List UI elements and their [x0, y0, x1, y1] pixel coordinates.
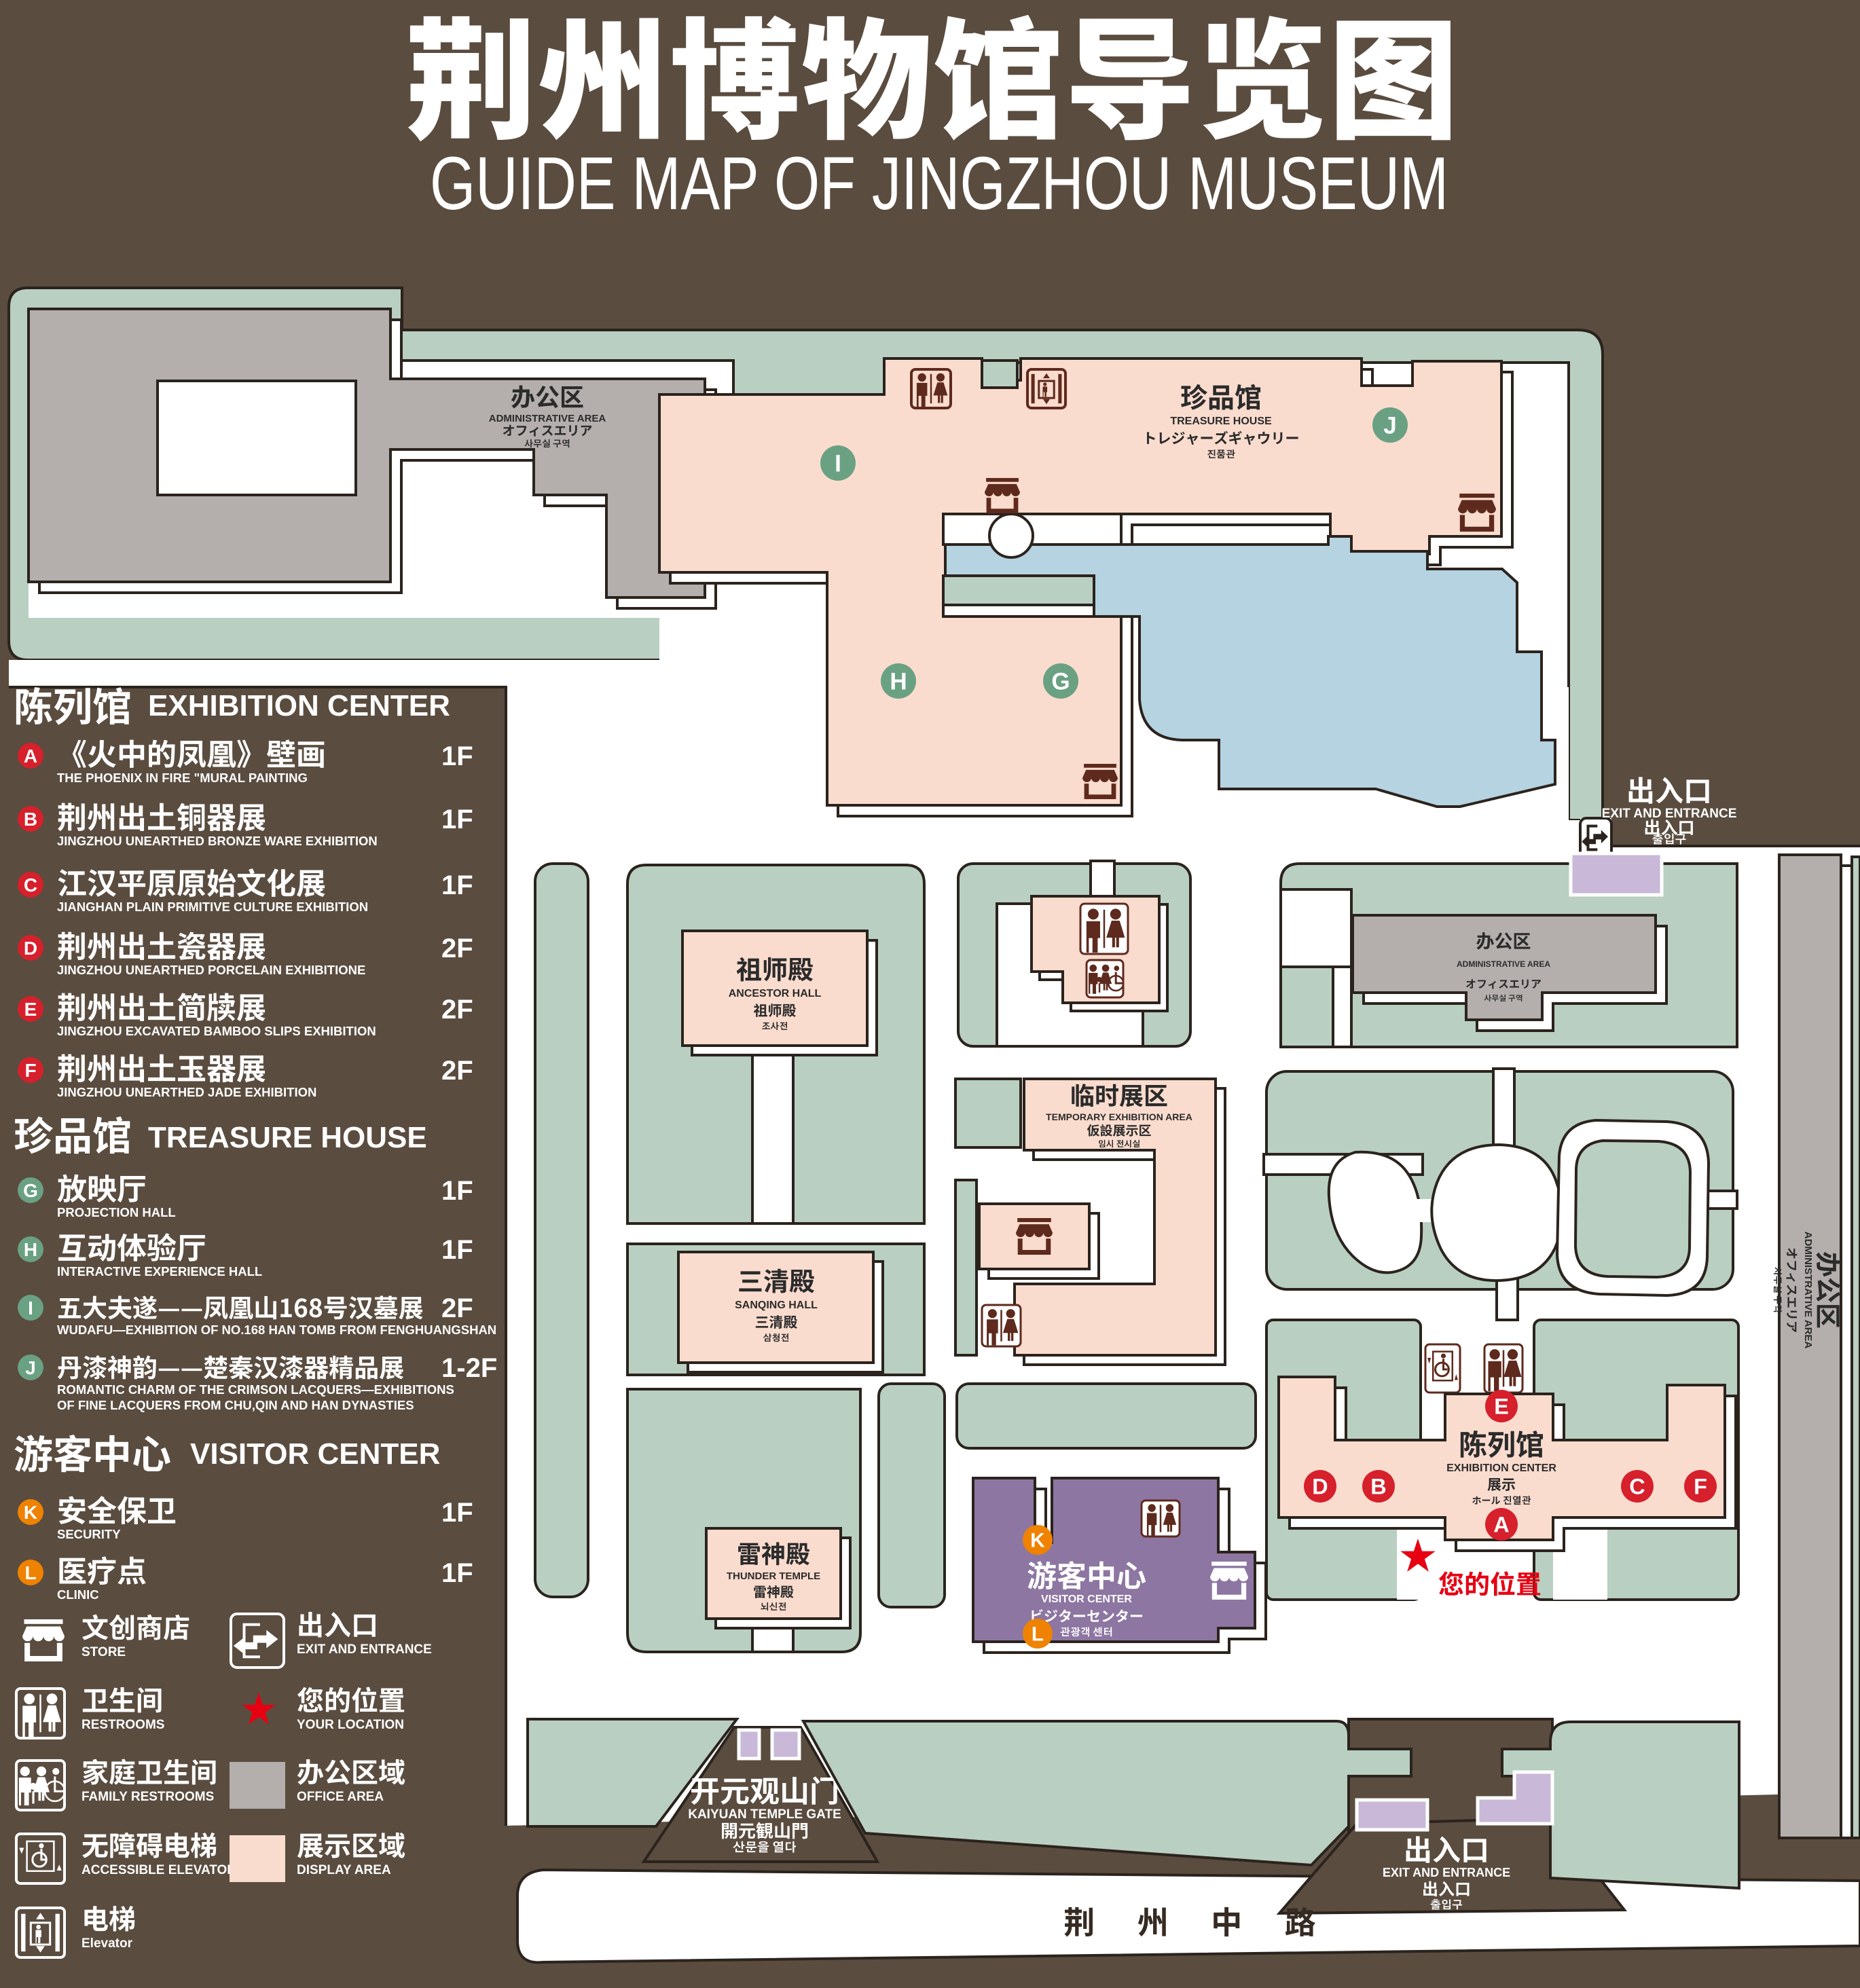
svg-text:B: B [24, 809, 37, 830]
svg-text:1-2F: 1-2F [441, 1353, 497, 1383]
svg-text:PROJECTION HALL: PROJECTION HALL [57, 1205, 176, 1219]
svg-text:CLINIC: CLINIC [57, 1587, 99, 1602]
svg-text:EXHIBITION CENTER: EXHIBITION CENTER [1446, 1462, 1556, 1474]
svg-text:ADMINISTRATIVE AREA: ADMINISTRATIVE AREA [489, 413, 606, 424]
svg-text:VISITOR CENTER: VISITOR CENTER [190, 1437, 440, 1471]
svg-text:F: F [24, 1060, 36, 1081]
svg-text:D: D [24, 938, 37, 959]
svg-text:WUDAFU—EXHIBITION OF NO.168 HA: WUDAFU—EXHIBITION OF NO.168 HAN TOMB FRO… [57, 1323, 496, 1337]
svg-text:OFFICE AREA: OFFICE AREA [297, 1790, 384, 1804]
svg-text:THE PHOENIX IN FIRE "MURAL PAI: THE PHOENIX IN FIRE "MURAL PAINTING [57, 771, 308, 785]
svg-text:J: J [1383, 413, 1397, 439]
svg-text:H: H [24, 1239, 37, 1260]
svg-text:VISITOR CENTER: VISITOR CENTER [1041, 1594, 1132, 1605]
svg-text:ADMINISTRATIVE AREA: ADMINISTRATIVE AREA [1802, 1232, 1814, 1349]
svg-text:I: I [835, 451, 841, 477]
svg-text:K: K [24, 1502, 37, 1523]
svg-text:A: A [24, 745, 37, 767]
svg-text:EXIT AND ENTRANCE: EXIT AND ENTRANCE [1383, 1866, 1510, 1879]
svg-text:ANCESTOR HALL: ANCESTOR HALL [729, 988, 822, 999]
svg-text:EXIT AND ENTRANCE: EXIT AND ENTRANCE [297, 1642, 432, 1657]
svg-text:L: L [1032, 1623, 1044, 1646]
svg-text:ROMANTIC CHARM OF THE CRIMSON: ROMANTIC CHARM OF THE CRIMSON LACQUERS—E… [57, 1382, 454, 1397]
svg-text:OF FINE LACQUERS FROM CHU,QIN: OF FINE LACQUERS FROM CHU,QIN AND HAN DY… [57, 1398, 414, 1412]
svg-text:1F: 1F [441, 1558, 473, 1588]
svg-text:JIANGHAN PLAIN PRIMITIVE CULTU: JIANGHAN PLAIN PRIMITIVE CULTURE EXHIBIT… [57, 900, 368, 914]
svg-text:J: J [25, 1357, 36, 1378]
svg-text:A: A [1493, 1513, 1509, 1537]
svg-text:RESTROOMS: RESTROOMS [81, 1718, 164, 1732]
svg-text:D: D [1312, 1475, 1328, 1499]
svg-text:GUIDE MAP OF JINGZHOU MUSEUM: GUIDE MAP OF JINGZHOU MUSEUM [430, 142, 1448, 225]
svg-text:C: C [1629, 1475, 1645, 1499]
svg-text:TREASURE HOUSE: TREASURE HOUSE [1170, 416, 1272, 427]
svg-text:I: I [28, 1297, 33, 1319]
svg-text:1F: 1F [441, 1235, 473, 1265]
svg-text:DISPLAY AREA: DISPLAY AREA [297, 1863, 391, 1877]
svg-text:YOUR LOCATION: YOUR LOCATION [297, 1718, 404, 1732]
svg-text:1F: 1F [441, 1498, 473, 1528]
svg-text:TEMPORARY EXHIBITION AREA: TEMPORARY EXHIBITION AREA [1046, 1111, 1192, 1122]
svg-text:K: K [1030, 1530, 1045, 1552]
svg-text:1F: 1F [441, 805, 473, 834]
svg-text:1F: 1F [441, 741, 473, 771]
svg-text:1F: 1F [441, 1176, 473, 1206]
svg-text:E: E [1494, 1395, 1509, 1419]
svg-text:Elevator: Elevator [81, 1936, 133, 1951]
svg-text:INTERACTIVE EXPERIENCE HALL: INTERACTIVE EXPERIENCE HALL [57, 1264, 262, 1278]
svg-text:ACCESSIBLE ELEVATOR: ACCESSIBLE ELEVATOR [81, 1863, 236, 1877]
svg-text:THUNDER TEMPLE: THUNDER TEMPLE [727, 1570, 820, 1582]
svg-text:JINGZHOU EXCAVATED BAMBOO SLIP: JINGZHOU EXCAVATED BAMBOO SLIPS EXHIBITI… [57, 1024, 376, 1038]
svg-text:1F: 1F [441, 870, 473, 900]
svg-text:EXIT AND ENTRANCE: EXIT AND ENTRANCE [1602, 807, 1737, 821]
svg-text:EXHIBITION CENTER: EXHIBITION CENTER [148, 689, 450, 722]
svg-text:JINGZHOU UNEARTHED BRONZE WARE: JINGZHOU UNEARTHED BRONZE WARE EXHIBITIO… [57, 834, 378, 848]
svg-text:2F: 2F [441, 1056, 473, 1086]
svg-text:F: F [1694, 1475, 1707, 1499]
svg-text:G: G [23, 1180, 38, 1201]
svg-text:E: E [24, 999, 37, 1020]
svg-text:B: B [1370, 1475, 1386, 1499]
svg-text:ADMINISTRATIVE AREA: ADMINISTRATIVE AREA [1457, 959, 1550, 969]
svg-text:G: G [1051, 669, 1070, 695]
svg-text:L: L [24, 1562, 36, 1583]
svg-text:C: C [24, 875, 37, 896]
svg-text:FAMILY RESTROOMS: FAMILY RESTROOMS [81, 1790, 214, 1804]
svg-text:JINGZHOU UNEARTHED JADE EXHIBI: JINGZHOU UNEARTHED JADE EXHIBITION [57, 1085, 316, 1099]
svg-text:STORE: STORE [81, 1645, 126, 1659]
svg-text:TREASURE HOUSE: TREASURE HOUSE [148, 1121, 427, 1154]
svg-text:2F: 2F [441, 1293, 473, 1323]
svg-text:2F: 2F [441, 995, 473, 1025]
svg-text:SECURITY: SECURITY [57, 1527, 121, 1541]
svg-text:H: H [890, 669, 907, 695]
svg-text:SANQING HALL: SANQING HALL [735, 1300, 818, 1311]
svg-text:JINGZHOU UNEARTHED PORCELAIN E: JINGZHOU UNEARTHED PORCELAIN EXHIBITIONE [57, 963, 365, 977]
svg-text:2F: 2F [441, 934, 473, 963]
svg-text:KAIYUAN TEMPLE GATE: KAIYUAN TEMPLE GATE [688, 1807, 841, 1822]
